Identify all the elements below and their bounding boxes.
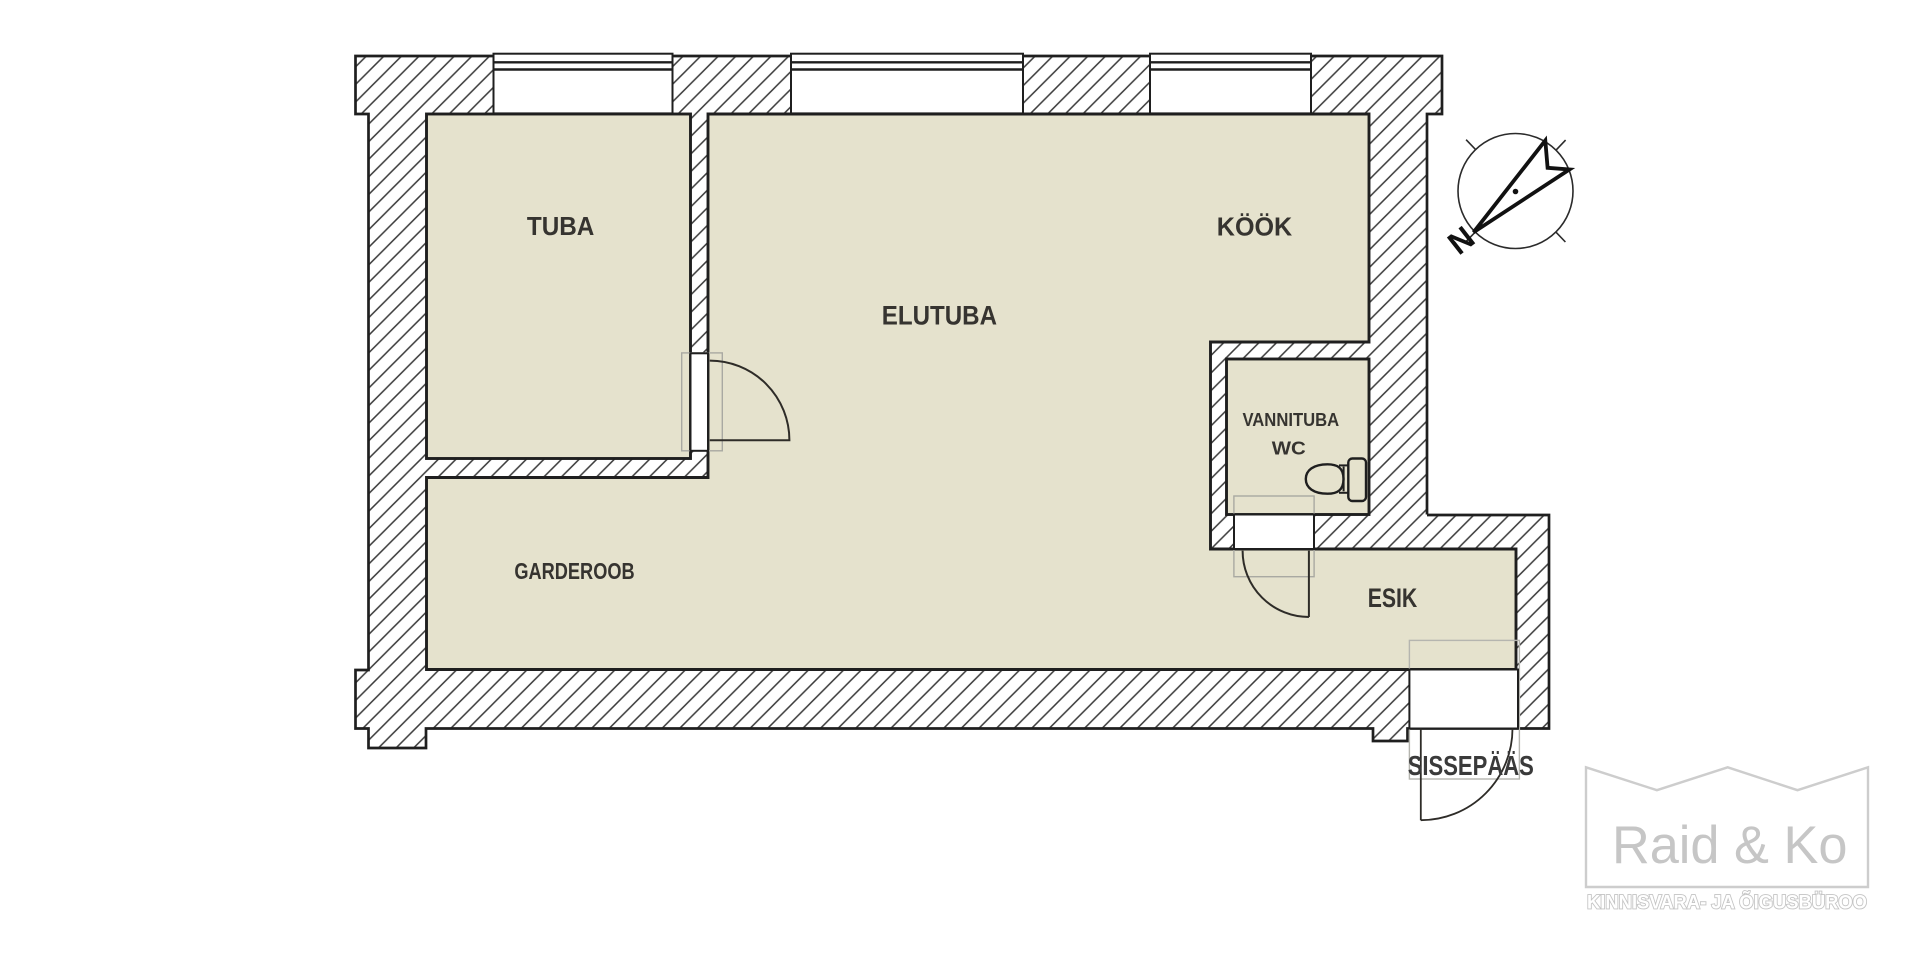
svg-text:WC: WC — [1272, 438, 1306, 459]
svg-text:Raid & Ko: Raid & Ko — [1612, 816, 1848, 875]
svg-text:GARDEROOB: GARDEROOB — [514, 558, 634, 584]
svg-text:ELUTUBA: ELUTUBA — [882, 301, 997, 331]
svg-text:KINNISVARA- JA ÕIGUSBÜROO: KINNISVARA- JA ÕIGUSBÜROO — [1587, 892, 1867, 914]
svg-text:KÖÖK: KÖÖK — [1217, 212, 1293, 242]
svg-text:VANNITUBA: VANNITUBA — [1242, 409, 1339, 430]
svg-text:N: N — [1441, 219, 1481, 262]
svg-text:ESIK: ESIK — [1368, 583, 1418, 613]
svg-text:TUBA: TUBA — [527, 211, 595, 241]
svg-text:SISSEPÄÄS: SISSEPÄÄS — [1408, 750, 1534, 781]
